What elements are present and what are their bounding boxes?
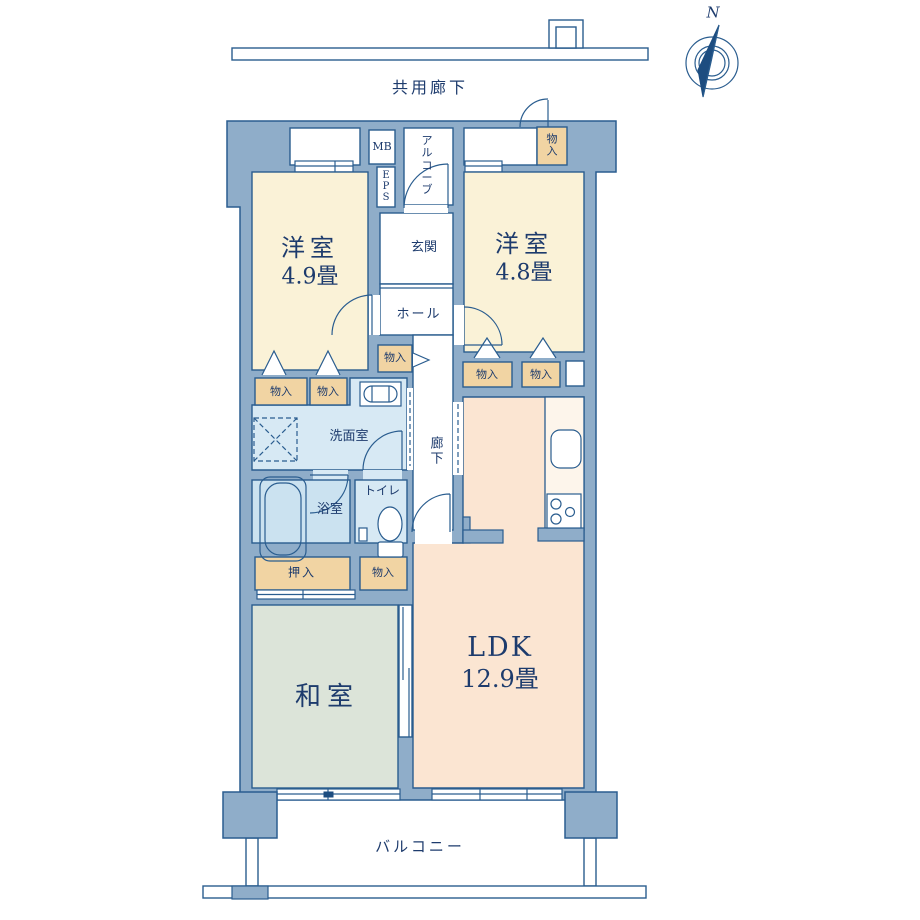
entrance-label: 玄関 bbox=[411, 240, 437, 256]
storage-label: 物入 bbox=[476, 368, 498, 382]
floor-plan-page: 共用廊下 N 洋室 4.9畳 洋室 4.8畳 MB EPS アルコーブ 物入 玄… bbox=[0, 0, 920, 920]
common-corridor-structure bbox=[232, 20, 648, 60]
meter-box-label: MB bbox=[372, 140, 391, 154]
storage-hall-label: 物入 bbox=[384, 351, 406, 365]
storage-exterior-label: 物入 bbox=[546, 134, 558, 159]
room-western2-name: 洋室 bbox=[495, 229, 553, 259]
compass-icon bbox=[686, 25, 738, 97]
stove bbox=[547, 494, 581, 528]
alcove-label: アルコーブ bbox=[421, 135, 433, 197]
kitchen-counter-stub bbox=[538, 528, 584, 541]
room-western2-size: 4.8畳 bbox=[496, 259, 553, 287]
storage-label: 物入 bbox=[317, 385, 339, 399]
storage-label: 物入 bbox=[530, 368, 552, 382]
porch-right bbox=[464, 128, 537, 165]
balcony-label: バルコニー bbox=[375, 838, 465, 857]
corridor-label: 廊下 bbox=[430, 437, 444, 466]
room-ldk-size: 12.9畳 bbox=[461, 664, 538, 694]
sliding-partition bbox=[399, 605, 412, 737]
storage-label: 物入 bbox=[372, 566, 394, 580]
floor-plan-drawing bbox=[0, 0, 920, 920]
eps-label: EPS bbox=[381, 170, 392, 204]
duct-box bbox=[566, 361, 584, 386]
storage-label: 物入 bbox=[270, 385, 292, 399]
ldk-entry-wall bbox=[463, 530, 503, 543]
common-corridor-label: 共用廊下 bbox=[392, 78, 468, 98]
room-japanese-label: 和室 bbox=[295, 681, 359, 714]
balcony-railing bbox=[203, 886, 646, 898]
room-western1-name: 洋室 bbox=[281, 233, 339, 263]
room-western1-size: 4.9畳 bbox=[282, 263, 339, 291]
washroom-label: 洗面室 bbox=[329, 429, 368, 445]
toilet-label: トイレ bbox=[364, 484, 400, 499]
room-ldk-name: LDK bbox=[467, 631, 533, 665]
bath-label: 浴室 bbox=[317, 502, 343, 518]
porch-left bbox=[290, 128, 360, 165]
hall-label: ホール bbox=[396, 307, 441, 323]
kitchen-sink bbox=[551, 430, 581, 468]
washbasin bbox=[360, 382, 401, 406]
compass-north-label: N bbox=[706, 4, 719, 23]
oshiire-label: 押入 bbox=[288, 566, 316, 581]
